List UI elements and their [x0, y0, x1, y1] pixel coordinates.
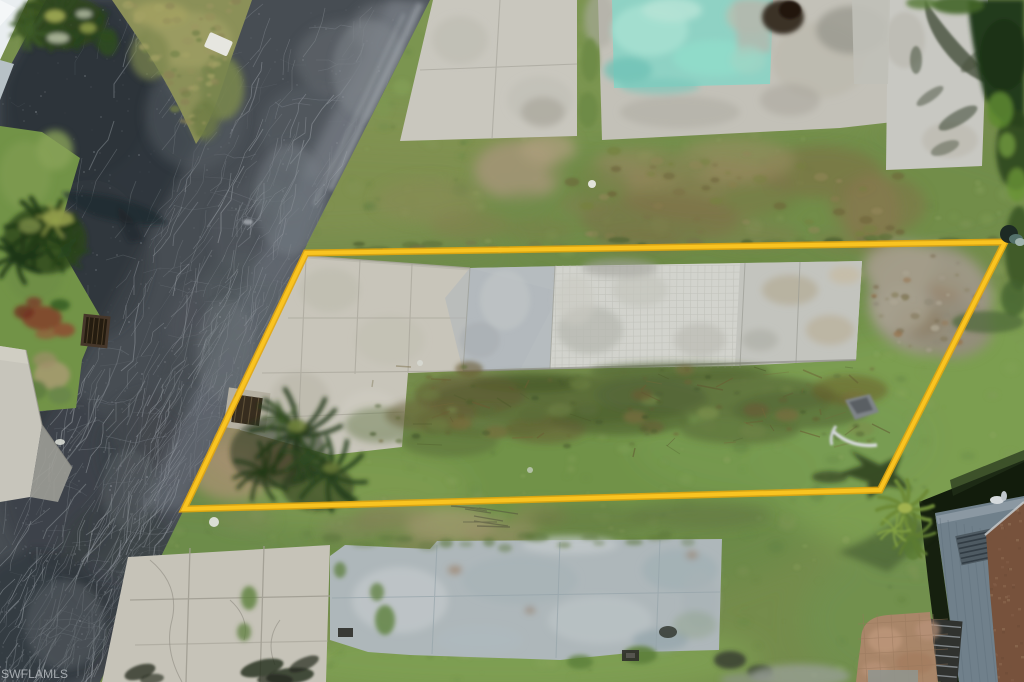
svg-text:SWFLAMLS: SWFLAMLS	[1, 667, 68, 681]
